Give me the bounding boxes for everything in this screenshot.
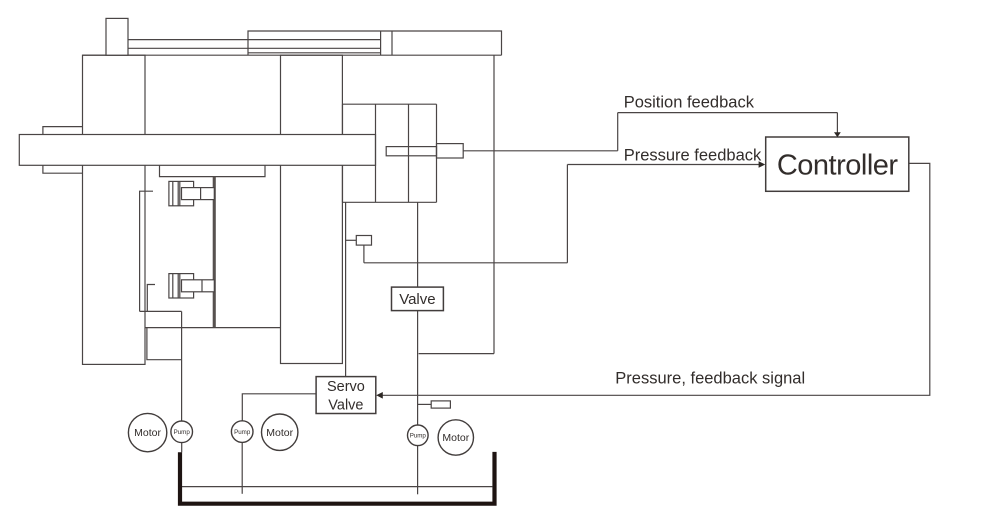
svg-text:Valve: Valve	[399, 291, 435, 308]
svg-text:Pressure, feedback signal: Pressure, feedback signal	[615, 370, 805, 388]
svg-text:Pump: Pump	[174, 429, 191, 436]
svg-text:Position feedback: Position feedback	[624, 93, 755, 111]
svg-text:Servo: Servo	[327, 379, 365, 395]
svg-text:Motor: Motor	[442, 432, 469, 444]
svg-text:Motor: Motor	[134, 427, 161, 439]
svg-text:Pump: Pump	[410, 433, 427, 440]
svg-text:Pump: Pump	[234, 429, 251, 436]
svg-text:Pressure feedback: Pressure feedback	[624, 147, 762, 165]
svg-text:Motor: Motor	[266, 427, 293, 439]
svg-text:Controller: Controller	[777, 150, 899, 182]
svg-text:Valve: Valve	[328, 397, 363, 413]
